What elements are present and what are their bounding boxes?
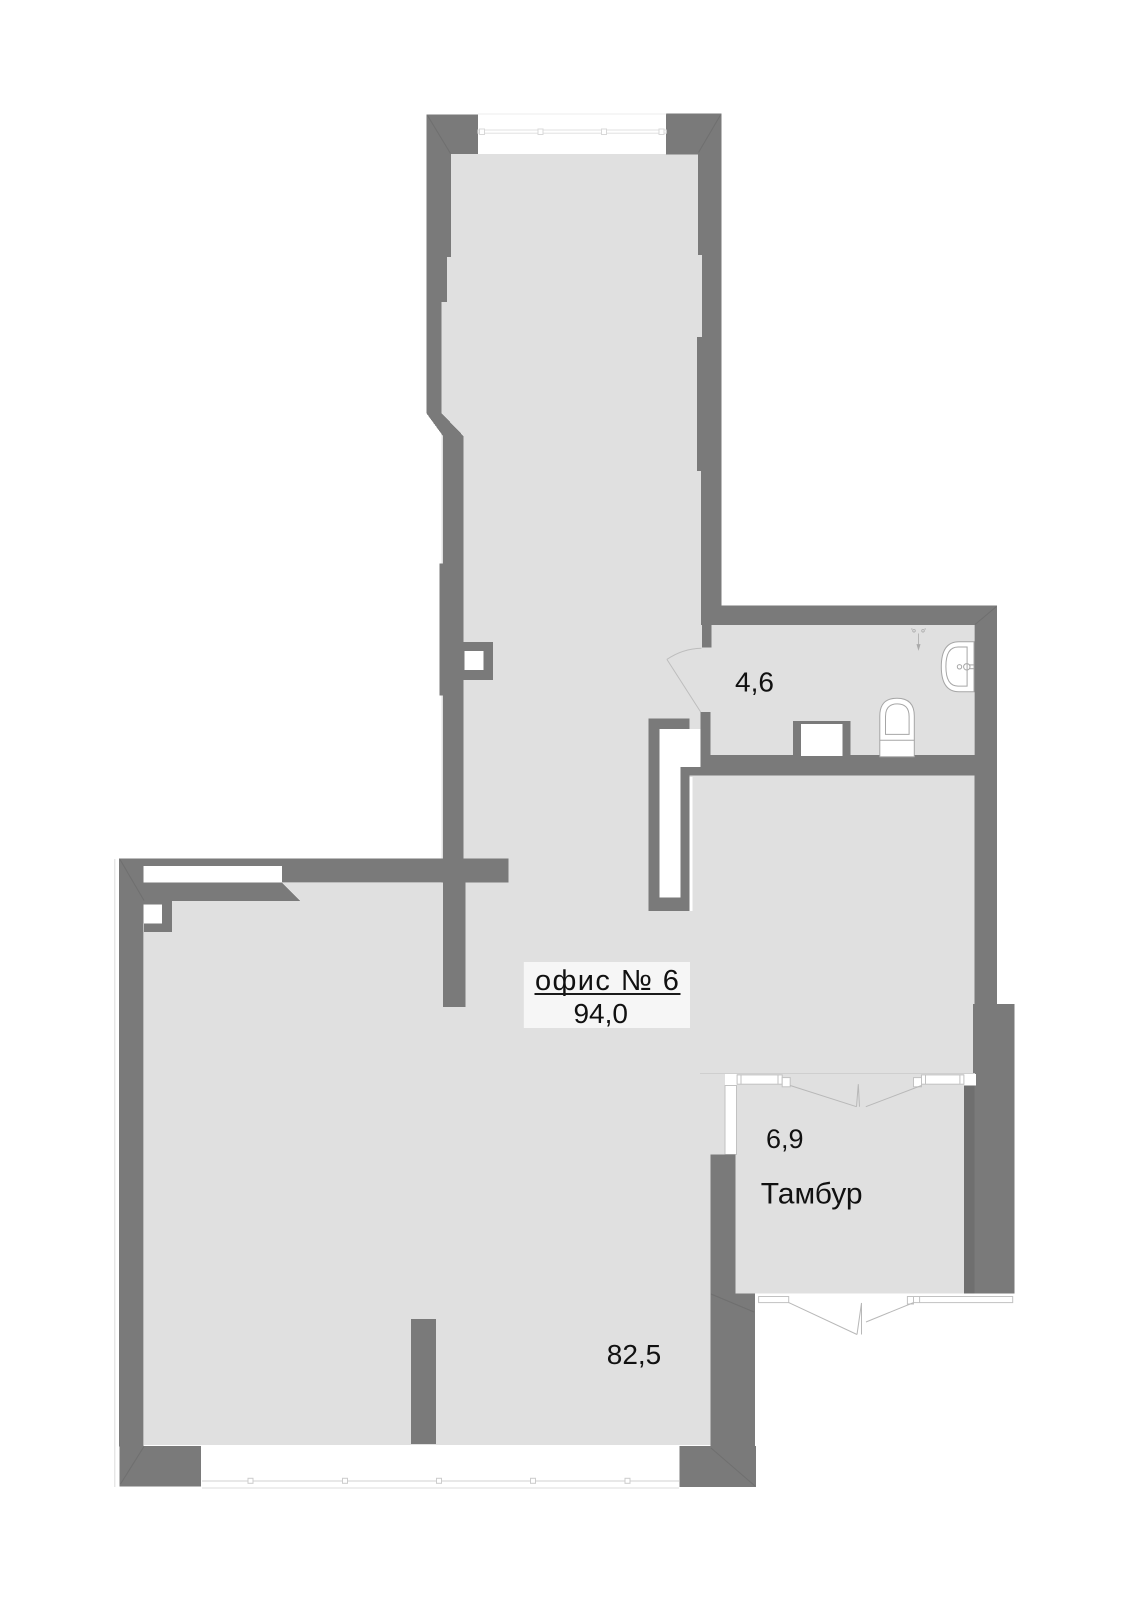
svg-text:Тамбур: Тамбур [761, 1178, 863, 1211]
svg-text:офис № 6: офис № 6 [535, 965, 680, 997]
svg-text:6,9: 6,9 [766, 1124, 804, 1154]
svg-text:4,6: 4,6 [735, 667, 774, 698]
svg-text:94,0: 94,0 [573, 998, 628, 1029]
svg-text:82,5: 82,5 [607, 1339, 662, 1370]
